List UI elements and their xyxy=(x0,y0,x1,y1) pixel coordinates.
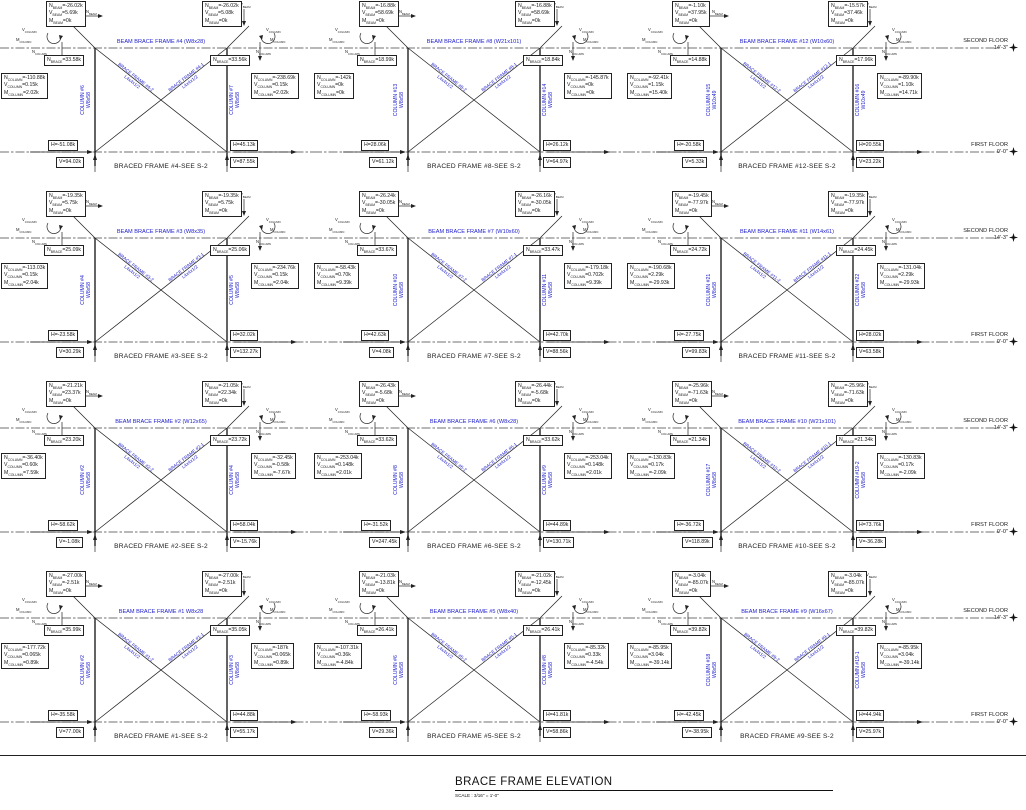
left-base-uplift-arrowhead xyxy=(406,154,410,160)
base-reaction-box-right: V=130.71k xyxy=(543,537,574,548)
brace-force-box-right: NBRACE=18.84k xyxy=(523,55,563,66)
beam-axial: NBEAM=-19.35k xyxy=(49,193,83,200)
first-floor-label: FIRST FLOOR 0'-0" xyxy=(971,332,1008,345)
base-reaction-box-left: V=30.29k xyxy=(56,347,84,358)
beam-axial: NBEAM=-27.00k xyxy=(49,573,83,580)
left-base-uplift-arrowhead xyxy=(406,724,410,730)
base-reaction-value: V=30.29k xyxy=(59,349,81,356)
left-base-uplift-arrowhead xyxy=(93,344,97,350)
beam-designation-label: BEAM BRACE FRAME #3 (W8x35) xyxy=(95,229,227,235)
m-column-symbol: MCOLUMN xyxy=(329,417,344,424)
left-column-designation: COLUMN #2 W8x58 xyxy=(80,452,94,508)
brace-axial: NBRACE=33.67k xyxy=(360,247,394,254)
m-column-symbol: MCOLUMN xyxy=(896,37,911,44)
v-column-symbol: VCOLUMN xyxy=(335,217,350,224)
column-axial: NCOLUMN=-85.32k xyxy=(567,645,606,652)
base-reaction-value: V=4.08k xyxy=(372,349,391,356)
right-base-uplift-arrowhead xyxy=(225,724,229,730)
right-column-designation: COLUMN #19-1 W8x58 xyxy=(855,642,869,698)
beam-axial: NBEAM=-26.02k xyxy=(49,3,83,10)
column-moment: MCOLUMN=14.71k xyxy=(880,90,919,97)
column-shear: VCOLUMN=0.15k xyxy=(254,82,296,89)
beam-moment: MBEAM=0k xyxy=(518,398,552,405)
beam-forces-box-right: NBEAM=-15.57k VBEAM=37.46k MBEAM=0k xyxy=(828,1,868,27)
v-column-symbol: VCOLUMN xyxy=(335,597,350,604)
column-shear: VCOLUMN=0.15k xyxy=(254,272,296,279)
base-shear-box-right: H=45.13k xyxy=(230,140,258,151)
column-moment: MCOLUMN=-39.14k xyxy=(880,660,919,667)
brace-force-box-right: NBRACE=26.41k xyxy=(523,625,563,636)
beam-axial: NBEAM=-26.43k xyxy=(362,383,396,390)
beam-designation-label: BEAM BRACE FRAME #12 (W10x60) xyxy=(721,39,853,45)
base-reaction-value: V=130.71k xyxy=(546,539,571,546)
column-moment: MCOLUMN=-2.09k xyxy=(630,470,672,477)
v-column-symbol: VCOLUMN xyxy=(648,27,663,34)
beam-moment: MBEAM=0k xyxy=(49,588,83,595)
v-column-symbol: VCOLUMN xyxy=(579,217,594,224)
floor-elevation-rail: SECOND FLOOR 14'-3" FIRST FLOOR 0'-0" xyxy=(939,570,1026,760)
floor-name: FIRST FLOOR xyxy=(971,332,1008,339)
right-base-uplift-arrowhead xyxy=(225,534,229,540)
n-beam-symbol: NBEAM xyxy=(712,389,723,396)
column-axial: NCOLUMN=-187k xyxy=(254,645,291,652)
brace-force-box-right: NBRACE=25.06k xyxy=(210,245,250,256)
n-beam-symbol: NBEAM xyxy=(712,9,723,16)
base-shear-value: H=42.63k xyxy=(364,332,386,339)
v-column-symbol: VCOLUMN xyxy=(266,597,281,604)
column-shear: VCOLUMN=1.10k xyxy=(880,82,919,89)
frame-row: VBEAM NBEAM VCOLUMN MCOLUMN NCOLUMN VBEA… xyxy=(0,0,1026,190)
base-shear-box-right: H=73.76k xyxy=(856,520,884,531)
left-column-designation: COLUMN #17 W8x58 xyxy=(706,452,720,508)
frame-caption: BRACED FRAME #3-SEE S-2 xyxy=(95,353,227,360)
base-reaction-box-left: V=-1.08k xyxy=(56,537,83,548)
braced-frame: VBEAM NBEAM VCOLUMN MCOLUMN NCOLUMN VBEA… xyxy=(0,380,313,570)
beam-forces-box-left: NBEAM=-16.88k VBEAM=58.69k MBEAM=0k xyxy=(359,1,399,27)
column-axial: NCOLUMN=-145.87k xyxy=(567,75,609,82)
first-floor-label: FIRST FLOOR 0'-0" xyxy=(971,712,1008,725)
brace-force-box-right: NBRACE=17.96k xyxy=(836,55,876,66)
left-base-shear-arrowhead xyxy=(713,150,719,154)
m-column-symbol: MCOLUMN xyxy=(896,607,911,614)
left-base-shear-arrowhead xyxy=(400,340,406,344)
column-forces-box-left: NCOLUMN=-85.95k VCOLUMN=3.04k MCOLUMN=-3… xyxy=(627,643,672,669)
frame-row: VBEAM NBEAM VCOLUMN MCOLUMN NCOLUMN VBEA… xyxy=(0,380,1026,570)
base-shear-box-right: H=28.02k xyxy=(856,330,884,341)
beam-moment: MBEAM=0k xyxy=(362,398,396,405)
n-beam-symbol: NBEAM xyxy=(712,199,723,206)
base-shear-box-right: H=42.70k xyxy=(543,330,571,341)
base-shear-value: H=20.55k xyxy=(859,142,881,149)
right-base-shear-arrowhead xyxy=(917,150,923,154)
base-reaction-value: V=23.22k xyxy=(859,159,881,166)
column-shear: VCOLUMN=-0.58k xyxy=(254,462,293,469)
n-column-symbol: NCOLUMN xyxy=(882,619,897,626)
first-floor-label: FIRST FLOOR 0'-0" xyxy=(971,142,1008,155)
right-column-designation: COLUMN #4 W8x58 xyxy=(229,452,243,508)
n-column-symbol: NCOLUMN xyxy=(882,429,897,436)
base-shear-box-right: H=58.04k xyxy=(230,520,258,531)
m-column-symbol: MCOLUMN xyxy=(329,37,344,44)
beam-shear: VBEAM=58.69k xyxy=(518,10,552,17)
column-moment: MCOLUMN=15.40k xyxy=(630,90,669,97)
rail-linework xyxy=(939,570,1026,760)
right-column-designation: COLUMN #8 W8x58 xyxy=(542,642,556,698)
braced-frame: VBEAM NBEAM VCOLUMN MCOLUMN NCOLUMN VBEA… xyxy=(0,190,313,380)
floor-name: FIRST FLOOR xyxy=(971,712,1008,719)
brace-force-box-right: NBRACE=33.47k xyxy=(523,245,563,256)
left-column-designation: COLUMN #8 W8x58 xyxy=(393,452,407,508)
right-column-designation: COLUMN #11 W8x58 xyxy=(542,262,556,318)
m-column-symbol: MCOLUMN xyxy=(16,417,31,424)
beam-moment: MBEAM=0k xyxy=(205,398,239,405)
beam-forces-box-right: NBEAM=-26.44k VBEAM=-5.68k MBEAM=0k xyxy=(515,381,555,407)
beam-shear: VBEAM=5.08k xyxy=(205,10,239,17)
column-section: W8x58 xyxy=(862,282,868,298)
beam-forces-box-left: NBEAM=-26.24k VBEAM=-30.05k MBEAM=0k xyxy=(359,191,399,217)
floor-name: FIRST FLOOR xyxy=(971,522,1008,529)
column-shear: VCOLUMN=2.29k xyxy=(630,272,672,279)
base-shear-value: H=-31.52k xyxy=(364,522,388,529)
beam-designation-label: BEAM BRACE FRAME #4 (W8x28) xyxy=(95,39,227,45)
column-moment: MCOLUMN=2.01k xyxy=(567,470,609,477)
right-column-designation: COLUMN #16 W10x49 xyxy=(855,72,869,128)
beam-designation-label: BEAM BRACE FRAME #8 (W21x101) xyxy=(408,39,540,45)
beam-axial: NBEAM=-21.21k xyxy=(49,383,83,390)
left-column-designation: COLUMN #13 W8x58 xyxy=(393,72,407,128)
column-section: W8x58 xyxy=(236,92,242,108)
brace-axial: NBRACE=17.96k xyxy=(839,57,873,64)
brace-axial: NBRACE=14.88k xyxy=(673,57,707,64)
beam-designation-label: BEAM BRACE FRAME #5 (W8x40) xyxy=(408,609,540,615)
column-section: W8x58 xyxy=(862,662,868,678)
brace-axial: NBRACE=35.05k xyxy=(213,627,247,634)
right-base-uplift-arrowhead xyxy=(851,534,855,540)
base-shear-box-left: H=-42.45k xyxy=(674,710,704,721)
column-shear: VCOLUMN=0.15k xyxy=(4,272,45,279)
beam-moment: MBEAM=0k xyxy=(831,588,864,595)
m-column-symbol: MCOLUMN xyxy=(270,37,285,44)
beam-axial: NBEAM=-26.16k xyxy=(518,193,552,200)
column-shear: VCOLUMN=0k xyxy=(317,82,351,89)
column-axial: NCOLUMN=-36.40k xyxy=(4,455,43,462)
brace-force-box-right: NBRACE=23.72k xyxy=(210,435,250,446)
base-shear-value: H=44.94k xyxy=(859,712,881,719)
floor-name: SECOND FLOOR xyxy=(963,38,1008,45)
base-reaction-value: V=-1.08k xyxy=(59,539,80,546)
drawing-sheet: VBEAM NBEAM VCOLUMN MCOLUMN NCOLUMN VBEA… xyxy=(0,0,1026,810)
base-reaction-value: V=247.45k xyxy=(372,539,397,546)
column-axial: NCOLUMN=-234.76k xyxy=(254,265,296,272)
beam-shear: VBEAM=-13.81k xyxy=(362,580,396,587)
beam-shear: VBEAM=-71.63k xyxy=(675,390,709,397)
beam-forces-box-right: NBEAM=-25.96k VBEAM=-71.63k MBEAM=0k xyxy=(828,381,868,407)
base-shear-box-right: H=44.94k xyxy=(856,710,884,721)
beam-moment: MBEAM=0k xyxy=(675,208,709,215)
column-axial: NCOLUMN=-130.83k xyxy=(880,455,922,462)
m-column-symbol: MCOLUMN xyxy=(642,37,657,44)
m-column-symbol: MCOLUMN xyxy=(583,227,598,234)
beam-moment: MBEAM=0k xyxy=(205,208,239,215)
base-shear-box-left: H=-58.62k xyxy=(48,520,78,531)
m-column-symbol: MCOLUMN xyxy=(896,227,911,234)
v-column-symbol: VCOLUMN xyxy=(335,27,350,34)
v-column-symbol: VCOLUMN xyxy=(266,217,281,224)
beam-shear: VBEAM=5.69k xyxy=(49,10,83,17)
left-base-shear-arrowhead xyxy=(713,720,719,724)
brace-force-box-left: NBRACE=26.41k xyxy=(357,625,397,636)
right-base-shear-arrowhead xyxy=(291,720,297,724)
right-base-uplift-arrowhead xyxy=(851,154,855,160)
base-reaction-box-right: V=25.97k xyxy=(856,727,884,738)
brace-axial: NBRACE=23.72k xyxy=(213,437,247,444)
beam-moment: MBEAM=0k xyxy=(518,18,552,25)
beam-moment: MBEAM=0k xyxy=(49,398,83,405)
base-reaction-box-right: V=55.17k xyxy=(230,727,258,738)
brace-force-box-right: NBRACE=24.45k xyxy=(836,245,876,256)
column-section: W8x58 xyxy=(549,662,555,678)
rail-linework xyxy=(939,0,1026,190)
base-reaction-box-left: V=5.33k xyxy=(682,157,707,168)
beam-forces-box-left: NBEAM=-21.03k VBEAM=-13.81k MBEAM=0k xyxy=(359,571,399,597)
base-shear-value: H=44.88k xyxy=(233,712,255,719)
base-reaction-box-left: V=77.00k xyxy=(56,727,84,738)
beam-moment: MBEAM=0k xyxy=(831,398,865,405)
base-shear-box-left: H=-35.58k xyxy=(48,710,78,721)
drawing-scale: SCALE : 3/16" = 1'-0" xyxy=(455,793,833,798)
beam-moment: MBEAM=0k xyxy=(362,208,396,215)
beam-moment: MBEAM=0k xyxy=(675,398,709,405)
brace-axial: NBRACE=33.58k xyxy=(47,57,81,64)
left-base-uplift-arrowhead xyxy=(406,344,410,350)
base-shear-box-right: H=44.89k xyxy=(543,520,571,531)
m-column-symbol: MCOLUMN xyxy=(583,37,598,44)
beam-axial: NBEAM=-1.10k xyxy=(675,3,707,10)
base-shear-value: H=-58.62k xyxy=(51,522,75,529)
base-shear-box-left: H=-20.58k xyxy=(674,140,704,151)
beam-forces-box-right: NBEAM=-3.04k VBEAM=-85.07k MBEAM=0k xyxy=(828,571,867,597)
beam-axial: NBEAM=-16.88k xyxy=(518,3,552,10)
m-column-symbol: MCOLUMN xyxy=(16,37,31,44)
n-beam-symbol: NBEAM xyxy=(399,199,410,206)
n-column-symbol: NCOLUMN xyxy=(569,49,584,56)
column-forces-box-right: NCOLUMN=-187k VCOLUMN=0.065k MCOLUMN=0.8… xyxy=(251,643,294,669)
floor-elevation-rail: SECOND FLOOR 14'-3" FIRST FLOOR 0'-0" xyxy=(939,190,1026,380)
n-column-symbol: NCOLUMN xyxy=(569,239,584,246)
braced-frame: VBEAM NBEAM VCOLUMN MCOLUMN NCOLUMN VBEA… xyxy=(626,190,939,380)
brace-force-box-right: NBRACE=35.05k xyxy=(210,625,250,636)
brace-axial: NBRACE=39.82k xyxy=(673,627,707,634)
column-section: W8x58 xyxy=(713,472,719,488)
column-axial: NCOLUMN=-142k xyxy=(317,75,351,82)
base-reaction-value: V=77.00k xyxy=(59,729,81,736)
base-reaction-box-left: V=-38.95k xyxy=(682,727,712,738)
left-column-designation: COLUMN #18 W8x58 xyxy=(706,642,720,698)
column-forces-box-left: NCOLUMN=-107.31k VCOLUMN=0.36k MCOLUMN=-… xyxy=(314,643,362,669)
left-base-shear-arrowhead xyxy=(87,720,93,724)
m-column-symbol: MCOLUMN xyxy=(16,227,31,234)
beam-moment: MBEAM=0k xyxy=(362,18,396,25)
column-moment: MCOLUMN=-2.09k xyxy=(880,470,922,477)
m-column-symbol: MCOLUMN xyxy=(583,417,598,424)
v-column-symbol: VCOLUMN xyxy=(266,27,281,34)
beam-forces-box-left: NBEAM=-26.43k VBEAM=-5.68k MBEAM=0k xyxy=(359,381,399,407)
column-moment: MCOLUMN=2.02k xyxy=(254,90,296,97)
right-base-shear-arrowhead xyxy=(291,530,297,534)
beam-forces-box-left: NBEAM=-1.10k VBEAM=37.95k MBEAM=0k xyxy=(672,1,710,27)
left-base-uplift-arrowhead xyxy=(719,534,723,540)
floor-elevation: 14'-3" xyxy=(963,615,1008,622)
v-column-symbol: VCOLUMN xyxy=(648,407,663,414)
base-reaction-box-left: V=29.36k xyxy=(369,727,397,738)
frame-grid: VBEAM NBEAM VCOLUMN MCOLUMN NCOLUMN VBEA… xyxy=(0,0,1026,760)
m-column-symbol: MCOLUMN xyxy=(329,607,344,614)
column-axial: NCOLUMN=-107.31k xyxy=(317,645,359,652)
brace-force-box-right: NBRACE=33.62k xyxy=(523,435,563,446)
frame-row: VBEAM NBEAM VCOLUMN MCOLUMN NCOLUMN VBEA… xyxy=(0,570,1026,760)
n-column-symbol: NCOLUMN xyxy=(569,429,584,436)
second-floor-label: SECOND FLOOR 14'-3" xyxy=(963,608,1008,621)
brace-axial: NBRACE=33.62k xyxy=(526,437,560,444)
beam-designation-label: BEAM BRACE FRAME #10 (W21x101) xyxy=(721,419,853,425)
beam-forces-box-left: NBEAM=-19.35k VBEAM=5.75k MBEAM=0k xyxy=(46,191,86,217)
left-base-shear-arrowhead xyxy=(87,340,93,344)
base-shear-value: H=44.89k xyxy=(546,522,568,529)
column-forces-box-right: NCOLUMN=-238.69k VCOLUMN=0.15k MCOLUMN=2… xyxy=(251,73,299,99)
beam-shear: VBEAM=-5.68k xyxy=(518,390,552,397)
n-beam-symbol: NBEAM xyxy=(712,579,723,586)
column-section: W8x58 xyxy=(87,282,93,298)
n-beam-symbol: NBEAM xyxy=(86,389,97,396)
column-axial: NCOLUMN=-177.72k xyxy=(4,645,46,652)
base-reaction-value: V=5.33k xyxy=(685,159,704,166)
right-base-shear-arrowhead xyxy=(291,150,297,154)
n-beam-symbol: NBEAM xyxy=(399,579,410,586)
column-moment: MCOLUMN=-7.67k xyxy=(254,470,293,477)
column-moment: MCOLUMN=2.02k xyxy=(4,90,45,97)
column-section: W8x58 xyxy=(87,92,93,108)
base-shear-value: H=28.02k xyxy=(859,332,881,339)
brace-axial: NBRACE=26.41k xyxy=(360,627,394,634)
brace-force-box-right: NBRACE=33.56k xyxy=(210,55,250,66)
beam-axial: NBEAM=-21.02k xyxy=(518,573,552,580)
frame-caption: BRACED FRAME #2-SEE S-2 xyxy=(95,543,227,550)
left-base-shear-arrowhead xyxy=(713,530,719,534)
column-moment: MCOLUMN=2.01k xyxy=(317,470,359,477)
column-forces-box-right: NCOLUMN=-131.04k VCOLUMN=2.29k MCOLUMN=-… xyxy=(877,263,925,289)
base-shear-value: H=26.12k xyxy=(546,142,568,149)
n-column-symbol: NCOLUMN xyxy=(256,49,271,56)
column-forces-box-right: NCOLUMN=-234.76k VCOLUMN=0.15k MCOLUMN=2… xyxy=(251,263,299,289)
floor-elevation-rail: SECOND FLOOR 14'-3" FIRST FLOOR 0'-0" xyxy=(939,380,1026,570)
beam-forces-box-left: NBEAM=-27.00k VBEAM=-2.51k MBEAM=0k xyxy=(46,571,86,597)
column-shear: VCOLUMN=0.70k xyxy=(317,272,356,279)
column-section: W10x49 xyxy=(713,90,719,109)
beam-designation-label: BEAM BRACE FRAME #1 W8x28 xyxy=(95,609,227,615)
m-column-symbol: MCOLUMN xyxy=(642,417,657,424)
column-shear: VCOLUMN=3.04k xyxy=(630,652,669,659)
v-column-symbol: VCOLUMN xyxy=(22,597,37,604)
column-section: W8x58 xyxy=(87,472,93,488)
beam-shear: VBEAM=-30.05k xyxy=(362,200,396,207)
column-axial: NCOLUMN=-253.04k xyxy=(317,455,359,462)
right-base-shear-arrowhead xyxy=(917,720,923,724)
beam-designation-label: BEAM BRACE FRAME #2 (W12x65) xyxy=(95,419,227,425)
right-base-uplift-arrowhead xyxy=(225,344,229,350)
frame-caption: BRACED FRAME #4-SEE S-2 xyxy=(95,163,227,170)
v-column-symbol: VCOLUMN xyxy=(22,407,37,414)
beam-shear: VBEAM=58.69k xyxy=(362,10,396,17)
beam-axial: NBEAM=-26.24k xyxy=(362,193,396,200)
right-base-shear-arrowhead xyxy=(604,720,610,724)
base-reaction-box-right: V=-15.76k xyxy=(230,537,260,548)
beam-forces-box-right: NBEAM=-16.88k VBEAM=58.69k MBEAM=0k xyxy=(515,1,555,27)
right-base-shear-arrowhead xyxy=(604,530,610,534)
second-floor-label: SECOND FLOOR 14'-3" xyxy=(963,418,1008,431)
floor-name: SECOND FLOOR xyxy=(963,228,1008,235)
column-forces-box-right: NCOLUMN=-179.18k VCOLUMN=0.702k MCOLUMN=… xyxy=(564,263,612,289)
left-base-uplift-arrowhead xyxy=(719,344,723,350)
beam-moment: MBEAM=0k xyxy=(518,208,552,215)
right-base-uplift-arrowhead xyxy=(851,344,855,350)
beam-moment: MBEAM=0k xyxy=(205,588,239,595)
base-shear-box-right: H=20.55k xyxy=(856,140,884,151)
right-base-shear-arrowhead xyxy=(604,340,610,344)
column-shear: VCOLUMN=0.702k xyxy=(567,272,609,279)
base-shear-box-right: H=32.02k xyxy=(230,330,258,341)
beam-forces-box-left: NBEAM=-26.02k VBEAM=5.69k MBEAM=0k xyxy=(46,1,86,27)
left-base-uplift-arrowhead xyxy=(93,534,97,540)
base-reaction-box-right: V=64.97k xyxy=(543,157,571,168)
n-beam-symbol: NBEAM xyxy=(399,389,410,396)
column-forces-box-left: NCOLUMN=-92.41k VCOLUMN=1.15k MCOLUMN=15… xyxy=(627,73,672,99)
frame-caption: BRACED FRAME #5-SEE S-2 xyxy=(408,733,540,740)
right-column-designation: COLUMN #19-2 W8x58 xyxy=(855,452,869,508)
beam-axial: NBEAM=-15.57k xyxy=(831,3,865,10)
left-column-designation: COLUMN #15 W10x49 xyxy=(706,72,720,128)
v-column-symbol: VCOLUMN xyxy=(892,597,907,604)
beam-moment: MBEAM=0k xyxy=(831,18,865,25)
brace-axial: NBRACE=21.34k xyxy=(673,437,707,444)
beam-axial: NBEAM=-19.35k xyxy=(205,193,239,200)
beam-designation-label: BEAM BRACE FRAME #9 (W16x67) xyxy=(721,609,853,615)
beam-shear: VBEAM=-77.97k xyxy=(675,200,709,207)
brace-force-box-left: NBRACE=35.99k xyxy=(44,625,84,636)
beam-moment: MBEAM=0k xyxy=(205,18,239,25)
base-shear-value: H=-58.93k xyxy=(364,712,388,719)
left-base-uplift-arrowhead xyxy=(406,534,410,540)
column-axial: NCOLUMN=-89.90k xyxy=(880,75,919,82)
beam-designation-label: BEAM BRACE FRAME #11 (W14x61) xyxy=(721,229,853,235)
beam-forces-box-right: NBEAM=-21.05k VBEAM=22.34k MBEAM=0k xyxy=(202,381,242,407)
beam-axial: NBEAM=-21.03k xyxy=(362,573,396,580)
drawing-title: BRACE FRAME ELEVATION xyxy=(455,776,833,788)
base-reaction-value: V=58.86k xyxy=(546,729,568,736)
frame-row: VBEAM NBEAM VCOLUMN MCOLUMN NCOLUMN VBEA… xyxy=(0,190,1026,380)
floor-name: SECOND FLOOR xyxy=(963,608,1008,615)
beam-shear: VBEAM=5.75k xyxy=(49,200,83,207)
base-shear-box-left: H=-23.58k xyxy=(48,330,78,341)
beam-moment: MBEAM=0k xyxy=(675,588,708,595)
frame-caption: BRACED FRAME #9-SEE S-2 xyxy=(721,733,853,740)
brace-axial: NBRACE=39.82k xyxy=(839,627,873,634)
base-reaction-box-left: V=94.02k xyxy=(56,157,84,168)
beam-moment: MBEAM=0k xyxy=(675,18,707,25)
right-column-designation: COLUMN #3 W8x58 xyxy=(229,642,243,698)
v-column-symbol: VCOLUMN xyxy=(579,407,594,414)
braced-frame: VBEAM NBEAM VCOLUMN MCOLUMN NCOLUMN VBEA… xyxy=(313,190,626,380)
v-column-symbol: VCOLUMN xyxy=(22,27,37,34)
